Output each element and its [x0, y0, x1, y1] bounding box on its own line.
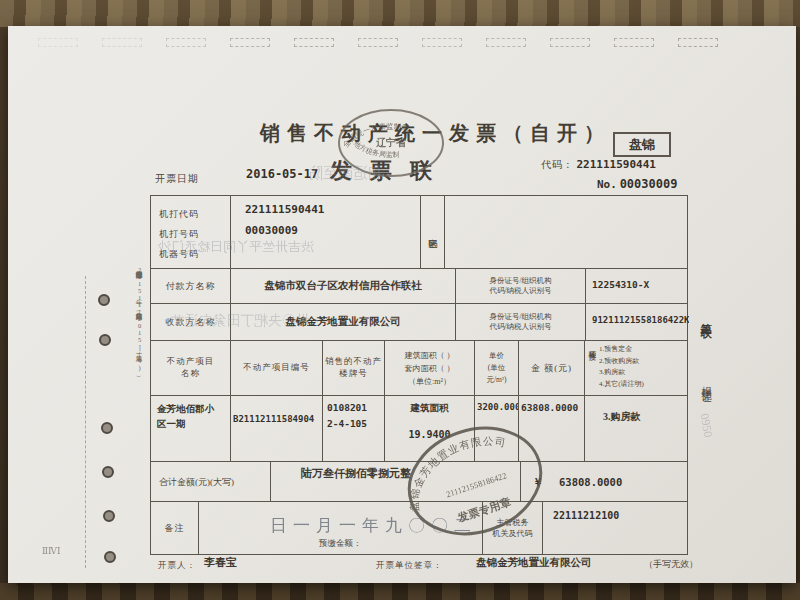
- photographed-invoice: 销售不动产统一发票（自开） 发票联 全国统一发票监制章 辽宁省 地方税务局监制 …: [0, 0, 800, 600]
- item-area-caption: 建筑面积: [385, 402, 474, 415]
- issue-date-value: 2016-05-17: [246, 167, 318, 181]
- machine-info-row: 机打代码 机打号码 机器号码 221111590441 00030009 密码区: [151, 196, 687, 269]
- items-header-row: 不动产项目 名称 不动产项目编号 销售的不动产 楼牌号 建筑面积（ ） 套内面积…: [151, 341, 687, 396]
- desk-background-top: [0, 0, 800, 27]
- perforation-line: [85, 276, 86, 568]
- payer-id-label-line2: 代码/纳税人识别号: [489, 286, 551, 296]
- password-area-label: 密码区: [426, 231, 439, 234]
- totals-label: 合计金额(元)(大写): [151, 462, 271, 501]
- item-building-no-1: 0108201: [327, 400, 384, 416]
- punch-hole: [102, 466, 114, 478]
- handwriting-invalid-note: （手写无效）: [644, 558, 698, 571]
- payee-name: 盘锦金芳地置业有限公司: [231, 304, 456, 340]
- machine-id-label: 机器号码: [159, 244, 230, 264]
- header-payment-nature: 款项性质: [587, 344, 597, 392]
- payer-row: 付款方名称 盘锦市双台子区农村信用合作联社 身份证号/组织机构 代码/纳税人识别…: [151, 269, 687, 304]
- machine-number-label: 机打号码: [159, 224, 230, 244]
- header-building-no-1: 销售的不动产: [325, 356, 382, 368]
- header-unit-price-1: 单价: [489, 350, 504, 362]
- header-project-name-2: 名称: [181, 368, 200, 380]
- punch-hole: [104, 551, 116, 563]
- supervision-stamp-center: 辽宁省: [376, 137, 407, 148]
- header-area-3: （单位:m²）: [408, 375, 451, 388]
- bleed-through-handwritten-date: 日一月一年九〇〇二: [270, 514, 477, 537]
- payee-label: 收款方名称: [151, 304, 231, 340]
- header-unit-price-3: 元/m²): [486, 374, 506, 386]
- tax-authority-code: 22111212100: [543, 502, 689, 554]
- header-area-1: 建筑面积（ ）: [405, 349, 455, 362]
- copy-number-label: 第二联: [698, 314, 713, 320]
- header-project-no: 不动产项目编号: [231, 341, 323, 395]
- invoice-number-value: 00030009: [620, 177, 678, 191]
- invoice-number-label: No.: [597, 178, 617, 191]
- payer-label: 付款方名称: [151, 269, 231, 303]
- payer-id-value: 12254310-X: [586, 269, 689, 303]
- copy-purpose-label: 报销凭证: [699, 378, 713, 386]
- punch-hole: [101, 422, 113, 434]
- payer-name: 盘锦市双台子区农村信用合作联社: [231, 269, 456, 303]
- invoice-code-value: 221111590441: [577, 158, 656, 171]
- header-area-2: 套内面积（ ）: [405, 362, 455, 375]
- issuing-unit-name: 盘锦金芳地置业有限公司: [476, 556, 592, 570]
- print-edition-info: 辽宁省地方税务局监制2015年11月印制（辽单第[2015]第一单(4)）: [134, 266, 143, 534]
- prepaid-amount-label: 预缴金额：: [319, 538, 362, 550]
- header-project-name-1: 不动产项目: [167, 356, 215, 368]
- totals-numeric: 63808.0000: [559, 476, 622, 488]
- punch-hole: [103, 510, 115, 522]
- header-building-no-2: 楼牌号: [339, 368, 368, 380]
- issuer-label: 开票人：: [158, 560, 196, 572]
- pen-scribble: 0950: [697, 412, 716, 438]
- payer-id-label-line1: 身份证号/组织机构: [489, 276, 551, 286]
- machine-code-label: 机打代码: [159, 204, 230, 224]
- machine-code-value: 221111590441: [245, 203, 420, 216]
- payment-option-2: 2.预收购房款: [599, 356, 644, 368]
- remarks-label: 备注: [151, 502, 199, 554]
- payment-option-4: 4.其它(请注明): [599, 379, 644, 391]
- item-building-no-2: 2-4-105: [327, 416, 384, 432]
- issuer-name: 李春宝: [204, 555, 237, 570]
- seal-tax-number: 211121558186422: [445, 470, 508, 499]
- invoice-paper: 销售不动产统一发票（自开） 发票联 全国统一发票监制章 辽宁省 地方税务局监制 …: [8, 26, 796, 583]
- tax-supervision-stamp: 全国统一发票监制章 辽宁省 地方税务局监制: [335, 106, 447, 180]
- punch-hole: [99, 334, 111, 346]
- payment-option-1: 1.预售定金: [599, 344, 644, 356]
- header-amount: 金 额(元): [519, 341, 585, 395]
- password-area: [445, 196, 689, 268]
- item-project-name-1: 金芳地佰郡小: [157, 402, 230, 417]
- item-payment-nature: 3.购房款: [585, 396, 689, 461]
- desk-background-bottom: [0, 583, 800, 600]
- header-unit-price-2: (单位: [488, 362, 506, 374]
- punch-hole: [98, 294, 110, 306]
- invoice-code-label: 代码：: [541, 159, 574, 170]
- item-project-no: B21112111584904: [231, 396, 323, 461]
- edge-print-mark: ⅡⅣⅠ: [42, 546, 61, 556]
- payee-id-label-line1: 身份证号/组织机构: [489, 312, 551, 322]
- machine-number-value: 00030009: [245, 224, 420, 237]
- payee-id-value: 91211121558186422K: [586, 304, 689, 340]
- payment-option-3: 3.购房款: [599, 367, 644, 379]
- payee-id-label-line2: 代码/纳税人识别号: [489, 322, 551, 332]
- issue-date-label: 开票日期: [155, 172, 199, 186]
- item-project-name-2: 区一期: [157, 417, 230, 432]
- payee-row: 收款方名称 盘锦金芳地置业有限公司 身份证号/组织机构 代码/纳税人识别号 91…: [151, 304, 687, 341]
- region-box: 盘锦: [613, 132, 671, 157]
- tractor-feed-marks: [38, 38, 718, 47]
